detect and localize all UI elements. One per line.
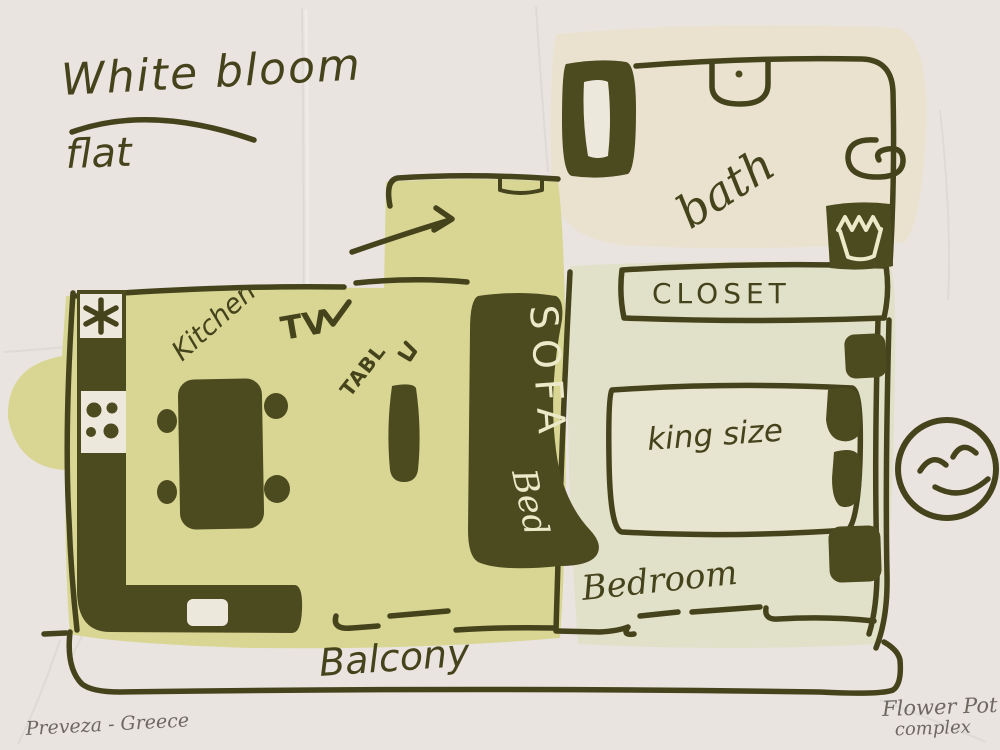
dining-table <box>178 378 265 529</box>
living-bottom-wall <box>456 628 554 630</box>
kitchen-sink-box <box>187 599 228 626</box>
stove-box <box>81 391 126 453</box>
king-bed-fill <box>609 385 861 534</box>
floor-plan-sketch: White bloom flat bath CLOSET king size B… <box>0 0 1000 750</box>
pillow-bottom <box>832 450 862 507</box>
balcony-left-tick <box>44 633 66 634</box>
pillow-top <box>826 388 861 442</box>
nightstand-bottom <box>828 525 882 583</box>
closet-label: CLOSET <box>652 277 791 310</box>
tv-label: TV <box>278 302 331 348</box>
bath-door-slot <box>584 80 611 158</box>
living-top-wall-2 <box>356 280 467 283</box>
title-line2: flat <box>65 130 134 178</box>
floor-plan-page: White bloom flat bath CLOSET king size B… <box>0 0 1000 750</box>
nightstand-top <box>844 333 887 379</box>
toilet-flush-dot <box>736 71 743 78</box>
footer-complex-line2: complex <box>894 717 971 741</box>
side-table <box>388 384 419 482</box>
